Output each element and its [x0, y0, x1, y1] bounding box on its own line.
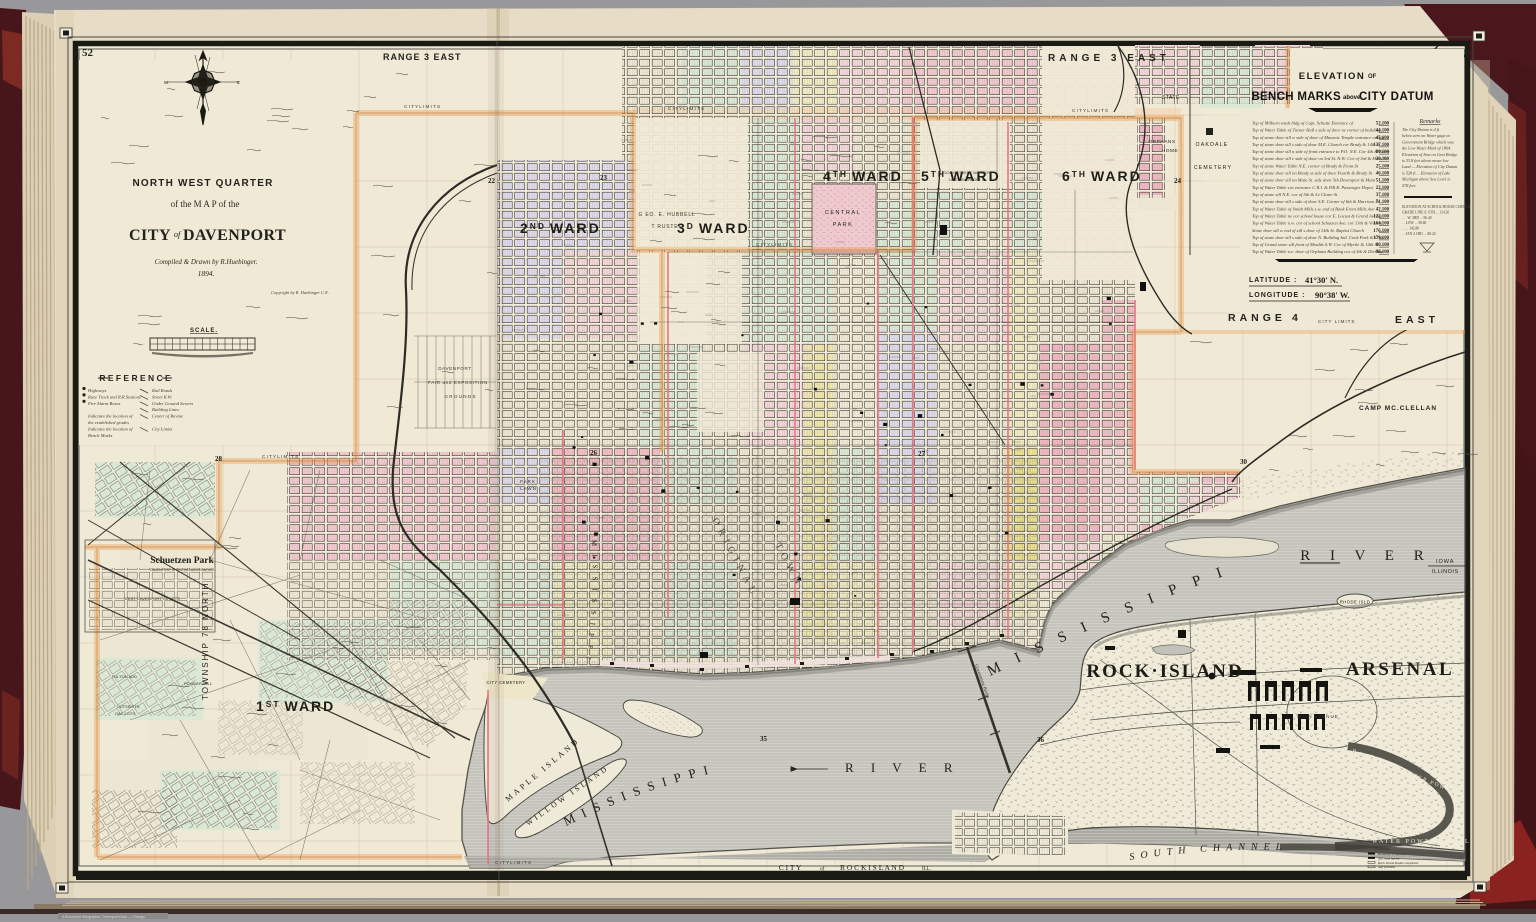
svg-text:C I T Y L I M I T S: C I T Y L I M I T S: [668, 106, 704, 111]
svg-text:52: 52: [82, 47, 94, 59]
svg-text:Fire Alarm Boxes: Fire Alarm Boxes: [87, 401, 121, 406]
svg-text:A Braunhold lithographer, Dave: A Braunhold lithographer, Davenport Iowa…: [62, 915, 145, 919]
svg-text:half finished: half finished: [1378, 865, 1395, 869]
svg-text:G EO. E. HUBBELL: G EO. E. HUBBELL: [639, 212, 696, 218]
svg-text:Buildings completed: Buildings completed: [1378, 852, 1406, 856]
svg-text:LAWN: LAWN: [520, 486, 537, 491]
svg-text:Top of Water Table n.e. door o: Top of Water Table n.e. door of Orphans …: [1252, 249, 1384, 254]
svg-text:Top of stone door sill s side: Top of stone door sill s side of door M.…: [1252, 142, 1381, 147]
svg-text:36: 36: [1037, 736, 1045, 744]
svg-text:. . JAN 4 1881 ... 88.20: . . JAN 4 1881 ... 88.20: [1402, 232, 1436, 236]
svg-text:BENCH MARKS: BENCH MARKS: [1251, 91, 1341, 103]
svg-text:POWDER MILL: POWDER MILL: [184, 681, 213, 686]
svg-text:OAK LOTS: OAK LOTS: [115, 711, 135, 716]
svg-text:Building Lines: Building Lines: [152, 407, 179, 412]
svg-text:the established grades: the established grades: [88, 420, 129, 425]
svg-text:ORPHANS: ORPHANS: [1148, 139, 1175, 145]
svg-text:C I T Y: C I T Y: [779, 863, 802, 872]
svg-text:CITY LIMITS: CITY LIMITS: [1318, 319, 1355, 324]
svg-text:30: 30: [1240, 458, 1248, 466]
svg-text:IOWA: IOWA: [1436, 559, 1454, 565]
svg-text:Indicates the location of: Indicates the location of: [87, 426, 133, 431]
svg-text:. . LOW ... 58.60: . . LOW ... 58.60: [1402, 221, 1426, 225]
svg-text:FULTON ADD.: FULTON ADD.: [112, 674, 138, 679]
svg-text:LATITUDE :: LATITUDE :: [1249, 277, 1297, 284]
svg-text:GRADE LINE E. 6TH ... 114.20: GRADE LINE E. 6TH ... 114.20: [1402, 210, 1449, 214]
svg-text:Schuetzen Park: Schuetzen Park: [150, 556, 214, 566]
svg-text:Top of Milburn wash bldg of Ca: Top of Milburn wash bldg of Capt. Schutt…: [1252, 121, 1354, 126]
svg-text:EAST: EAST: [1395, 314, 1439, 326]
svg-text:4: 4: [1292, 312, 1298, 324]
svg-text:Race Track and R.R.Stations: Race Track and R.R.Stations: [87, 394, 141, 399]
svg-text:578 feet.: 578 feet.: [1402, 183, 1416, 188]
svg-text:ARSENAL: ARSENAL: [1346, 659, 1454, 680]
svg-text:WATER POWER CANAL: WATER POWER CANAL: [1372, 839, 1471, 845]
svg-text:R O C K I S L A N D: R O C K I S L A N D: [840, 863, 905, 872]
svg-text:OF: OF: [1368, 74, 1377, 80]
svg-text:Stone door sill w end of sill: Stone door sill w end of sill s door of …: [1252, 228, 1365, 233]
svg-text:Land — Elevation of City Datum: Land — Elevation of City Datum: [1401, 164, 1457, 169]
svg-text:the Low Water Mark of 1864.: the Low Water Mark of 1864.: [1402, 146, 1451, 151]
svg-text:LONGITUDE :: LONGITUDE :: [1249, 292, 1306, 299]
svg-text:OUTSKIRTS: OUTSKIRTS: [117, 704, 140, 709]
svg-text:DAVENPORT SHOOTING ASSOCIATION: DAVENPORT SHOOTING ASSOCIATION: [150, 568, 214, 572]
svg-text:CEMETERY: CEMETERY: [1194, 165, 1232, 171]
svg-text:C I T Y L I M I T S: C I T Y L I M I T S: [262, 454, 298, 459]
svg-text:DAVENPORT: DAVENPORT: [183, 227, 286, 244]
svg-text:27: 27: [918, 450, 926, 458]
svg-text:T RUSTEE: T RUSTEE: [651, 224, 682, 230]
svg-text:Top of Water Table of Smith Mi: Top of Water Table of Smith Mills s.w. e…: [1252, 206, 1374, 211]
svg-text:Top of stone door sill e side: Top of stone door sill e side of door on…: [1252, 156, 1387, 161]
svg-text:The City Datum is 4 ft: The City Datum is 4 ft: [1402, 127, 1440, 132]
svg-text:Top of stone door sill s side: Top of stone door sill s side of door S.…: [1252, 199, 1380, 204]
svg-text:Copyright by R. Huebinger C.E.: Copyright by R. Huebinger C.E.: [271, 290, 329, 295]
svg-text:Under Ground Sewers: Under Ground Sewers: [152, 401, 193, 406]
svg-text:LAKE DAVENPORT Co.: LAKE DAVENPORT Co.: [949, 178, 988, 182]
svg-text:23: 23: [600, 174, 608, 182]
svg-text:RANGE 3 EAST: RANGE 3 EAST: [383, 52, 462, 62]
svg-text:is 528 ft ... Elevation of Lak: is 528 ft ... Elevation of Lake: [1402, 170, 1450, 175]
svg-text:C I T Y L I M I T S: C I T Y L I M I T S: [756, 242, 792, 247]
svg-text:G R O U N D S: G R O U N D S: [444, 394, 475, 399]
svg-text:ILLINOIS: ILLINOIS: [1432, 569, 1459, 575]
svg-text:STATE: STATE: [1162, 95, 1180, 101]
svg-text:Top of stone door sill n side: Top of stone door sill n side of front e…: [1252, 149, 1390, 154]
svg-text:. . . . 142.80: . . . . 142.80: [1402, 227, 1419, 231]
svg-text:ILL.: ILL.: [922, 867, 931, 872]
svg-text:DAVENPORT: DAVENPORT: [438, 366, 472, 371]
svg-text:Top of stone door sill on Main: Top of stone door sill on Main St. side …: [1252, 178, 1376, 183]
svg-text:Bench Marks: Bench Marks: [88, 433, 113, 438]
svg-text:RHODE ISLD: RHODE ISLD: [1340, 600, 1371, 605]
svg-text:CENTRAL: CENTRAL: [825, 210, 861, 216]
svg-text:RANGE: RANGE: [1228, 312, 1286, 324]
svg-text:26: 26: [590, 449, 598, 457]
svg-text:PARK: PARK: [833, 222, 854, 228]
svg-text:CITY DATUM: CITY DATUM: [1359, 91, 1434, 103]
svg-text:Top of stone Water Table N.E.: Top of stone Water Table N.E. corner of …: [1252, 163, 1359, 168]
svg-text:R I V E R: R I V E R: [845, 760, 960, 775]
svg-text:Rail Roads: Rail Roads: [151, 388, 173, 393]
svg-text:Top of stone sill N.E. cor of: Top of stone sill N.E. cor of 5th & Le C…: [1252, 192, 1338, 197]
svg-text:Highways: Highways: [87, 388, 107, 393]
svg-text:1894.: 1894.: [198, 269, 215, 278]
svg-text:R I V E R: R I V E R: [1300, 548, 1431, 564]
svg-text:90°38′ W.: 90°38′ W.: [1315, 290, 1350, 300]
svg-text:HOME: HOME: [1162, 148, 1178, 154]
svg-text:NORTH WEST QUARTER: NORTH WEST QUARTER: [132, 178, 273, 189]
svg-text:Remarks: Remarks: [1419, 119, 1442, 125]
svg-text:C I T Y L I M I T S: C I T Y L I M I T S: [1072, 108, 1108, 113]
svg-text:below zero on Water gage at: below zero on Water gage at: [1402, 133, 1451, 138]
svg-text:C I T Y L I M I T S: C I T Y L I M I T S: [404, 104, 440, 109]
svg-text:Top of Grand stone sill front: Top of Grand stone sill front of Moulds …: [1252, 242, 1379, 247]
svg-text:Top of stone door sill on Brad: Top of stone door sill on Brady st side …: [1252, 171, 1373, 176]
svg-text:24: 24: [1174, 177, 1182, 185]
svg-text:of the M A P of the: of the M A P of the: [171, 199, 240, 209]
svg-text:Compiled & Drawn by R.Huebinge: Compiled & Drawn by R.Huebinger.: [155, 258, 258, 266]
svg-text:ROCK·ISLAND: ROCK·ISLAND: [1086, 661, 1243, 682]
svg-text:Elevation of Iron on Govt Brid: Elevation of Iron on Govt Bridge: [1401, 152, 1457, 157]
svg-text:Center of Ravine: Center of Ravine: [152, 414, 183, 419]
svg-text:is 33.8 feet above mean low: is 33.8 feet above mean low: [1402, 158, 1449, 163]
svg-text:MAIN AVENUE: MAIN AVENUE: [1297, 714, 1338, 719]
svg-text:ELEVATION: ELEVATION: [1299, 71, 1365, 82]
svg-text:Top of Water Table cor entranc: Top of Water Table cor entrance C.R.I. &…: [1252, 185, 1374, 190]
svg-text:ELEVATION AT SCHOOL HOUSE CORN: ELEVATION AT SCHOOL HOUSE CORNER: [1402, 205, 1471, 209]
svg-text:Top of Water Table ne cor scho: Top of Water Table ne cor school house c…: [1252, 213, 1382, 218]
svg-text:GOUY STREET NURSERY: GOUY STREET NURSERY: [943, 170, 992, 175]
svg-text:Michigan above Sea Level is: Michigan above Sea Level is: [1401, 177, 1451, 182]
svg-text:Top of stone door sill s side: Top of stone door sill s side of door N.…: [1252, 235, 1383, 240]
svg-text:WEST·DAVENPORT·Co·LOTS: WEST·DAVENPORT·Co·LOTS: [124, 596, 180, 601]
svg-text:35: 35: [760, 735, 768, 743]
svg-text:CITY: CITY: [129, 227, 171, 244]
svg-text:RANGE 3 EAST: RANGE 3 EAST: [1048, 53, 1170, 64]
svg-text:R E F E R E N C E: R E F E R E N C E: [99, 373, 171, 383]
svg-text:. . . W. 3RD ... 96.40: . . . W. 3RD ... 96.40: [1402, 216, 1432, 220]
svg-text:OAKDALE: OAKDALE: [1196, 142, 1229, 148]
svg-text:City Limits: City Limits: [152, 426, 173, 431]
svg-text:Top of Water Table n.w. cor of: Top of Water Table n.w. cor of school Sc…: [1252, 221, 1382, 226]
svg-text:E: E: [237, 80, 240, 85]
svg-text:Rock Island Roads completed: Rock Island Roads completed: [1377, 861, 1419, 865]
svg-text:PARK: PARK: [520, 479, 536, 484]
svg-text:rail road layout: rail road layout: [1378, 856, 1400, 860]
svg-text:SCALE.: SCALE.: [190, 328, 218, 334]
svg-text:Remarks:: Remarks:: [1374, 846, 1391, 851]
svg-text:Top of stone door sill w side: Top of stone door sill w side of door of…: [1252, 135, 1385, 140]
svg-text:FAIR and EXPOSITION: FAIR and EXPOSITION: [428, 380, 488, 385]
svg-text:CAMP MC.CLELLAN: CAMP MC.CLELLAN: [1359, 405, 1437, 412]
svg-text:Street R.W.: Street R.W.: [152, 394, 173, 399]
svg-text:Indicates the location of: Indicates the location of: [87, 414, 133, 419]
svg-text:Top of Water Table of Turner H: Top of Water Table of Turner Hall s side…: [1252, 128, 1381, 133]
svg-text:Government Bridge which was: Government Bridge which was: [1402, 139, 1454, 144]
svg-text:28: 28: [215, 455, 223, 463]
svg-text:41°30′ N.: 41°30′ N.: [1305, 275, 1338, 285]
